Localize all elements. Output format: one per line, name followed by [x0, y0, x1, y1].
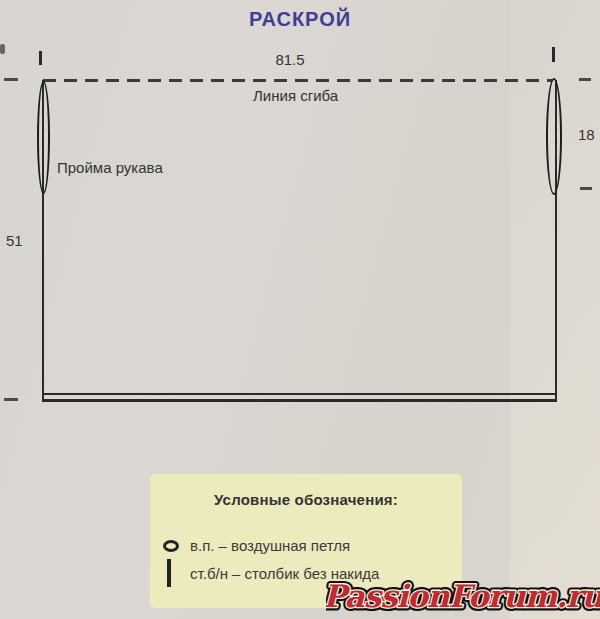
armhole-depth-label: 18 — [578, 126, 595, 143]
width-tick-left — [39, 51, 42, 65]
page-title: РАСКРОЙ — [0, 8, 600, 31]
fold-line — [43, 79, 552, 82]
legend-title: Условные обозначения: — [150, 491, 462, 508]
rect-bottom-line-lower — [43, 399, 557, 402]
width-measurement-label: 81.5 — [260, 51, 320, 68]
chain-stitch-oval-left — [37, 81, 50, 194]
armhole-label: Пройма рукава — [57, 159, 163, 176]
height-dash-top — [4, 78, 18, 81]
watermark: PassionForum.ru PassionForum.ru — [326, 572, 600, 619]
chain-stitch-oval-right — [546, 78, 562, 195]
depth-dash-top — [579, 78, 591, 81]
single-crochet-icon — [167, 559, 171, 587]
paper-edge-mark — [0, 44, 5, 54]
width-tick-right — [552, 47, 555, 62]
rect-bottom-line-upper — [43, 393, 557, 395]
side-height-label: 51 — [6, 232, 23, 249]
fold-line-label: Линия сгиба — [253, 87, 338, 104]
watermark-text: PassionForum.ru — [326, 578, 600, 614]
height-dash-bottom — [4, 398, 18, 401]
legend-item-label: в.п. – воздушная петля — [190, 537, 350, 554]
chain-stitch-icon — [163, 540, 179, 552]
scanned-pattern-page: РАСКРОЙ 81.5 Линия сгиба Пройма рукава 5… — [0, 0, 600, 619]
depth-dash-bottom — [580, 187, 592, 190]
